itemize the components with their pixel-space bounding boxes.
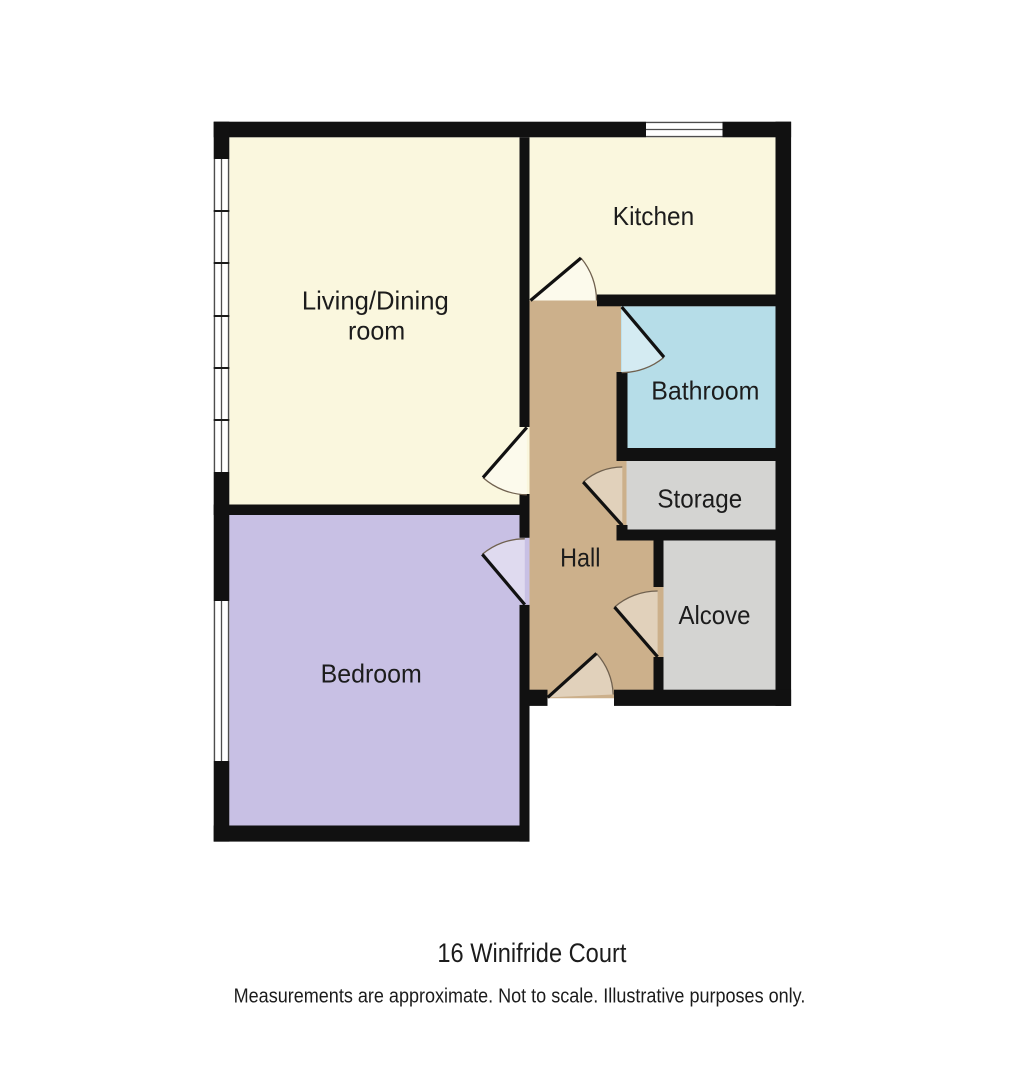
svg-text:Bedroom: Bedroom <box>321 658 422 688</box>
svg-text:Bathroom: Bathroom <box>651 375 759 405</box>
svg-text:Storage: Storage <box>657 484 742 514</box>
svg-text:16 Winifride Court: 16 Winifride Court <box>437 938 626 968</box>
svg-text:Alcove: Alcove <box>678 600 750 630</box>
svg-text:Living/Dining: Living/Dining <box>302 285 449 315</box>
svg-text:room: room <box>348 316 405 346</box>
svg-text:Measurements are approximate.: Measurements are approximate. Not to sca… <box>234 986 806 1008</box>
svg-text:Kitchen: Kitchen <box>613 201 694 231</box>
svg-text:Hall: Hall <box>560 543 600 573</box>
